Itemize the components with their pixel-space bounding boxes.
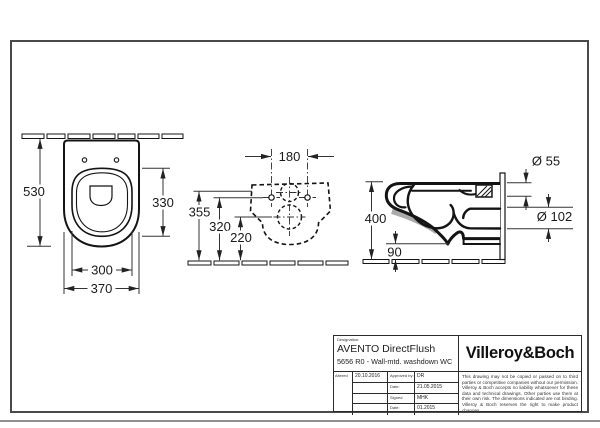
title-block: Designation: AVENTO DirectFlush 5656 R0 … [333,335,582,412]
altered-date-empty [353,394,387,405]
dim-inlet-diameter: Ø 55 [507,154,560,211]
altered-date-empty [353,404,387,415]
bowl-opening-outer [72,168,132,236]
product-name: AVENTO DirectFlush [337,343,454,355]
altered-dates-column: 20.10.2016 [353,372,388,415]
dim-outlet-label: Ø 102 [537,209,572,224]
altered-label-cell: Altered [334,372,353,415]
dim-530: 530 [21,139,51,246]
dim-320: 320 [206,198,263,260]
dim-inlet-label: Ø 55 [532,154,560,169]
mounting-hole-right [305,195,310,200]
approval-row: Signed MHK [388,394,458,405]
dim-outlet-diameter: Ø 102 [507,194,576,242]
wall-side [500,173,505,260]
dim-370-label: 370 [91,281,113,296]
dim-180: 180 [245,149,334,164]
approvals-column: Approved by: DR Date: 21.05.2015 Signed … [388,372,459,415]
floor-strip-side [363,260,505,264]
designation-cell: Designation: AVENTO DirectFlush 5656 R0 … [334,336,459,371]
rear-view: 180 355 320 220 [186,149,349,265]
approval-row: Approved by: DR [388,372,458,383]
dim-90: 90 [386,231,449,272]
inlet-pipe-hatched [476,185,492,197]
altered-date-empty [353,383,387,394]
dim-355-label: 355 [189,205,211,220]
dim-90-label: 90 [387,245,401,260]
wall-section-strip [22,134,183,139]
seat-hole-left [82,158,86,162]
altered-date: 20.10.2016 [353,372,387,383]
title-block-bottom: Altered 20.10.2016 Approved by: DR Date:… [334,372,581,415]
brand-logo: Villeroy&Boch [459,336,581,371]
technical-drawing-sheet: 530 330 300 [0,0,600,428]
dim-180-label: 180 [279,149,301,164]
dim-300-label: 300 [91,263,113,278]
approval-row: Date: 21.05.2015 [388,383,458,394]
mounting-hole-left [269,195,274,200]
floor-strip [188,261,348,265]
approval-row: Date: 01.2015 [388,404,458,415]
legal-disclaimer: This drawing may not be copied or passed… [459,372,581,415]
dim-400-label: 400 [365,211,387,226]
dim-330: 330 [142,168,177,236]
product-code: 5656 R0 - Wall-mtd. washdown WC [337,357,454,366]
designation-label: Designation: [337,337,454,342]
dim-530-label: 530 [23,184,45,199]
title-block-top: Designation: AVENTO DirectFlush 5656 R0 … [334,336,581,372]
dim-220-label: 220 [230,230,252,245]
plan-view: 530 330 300 [21,134,183,296]
dim-330-label: 330 [152,195,174,210]
seat-hole-right [114,158,118,162]
side-view: 400 90 Ø 55 [361,154,576,273]
